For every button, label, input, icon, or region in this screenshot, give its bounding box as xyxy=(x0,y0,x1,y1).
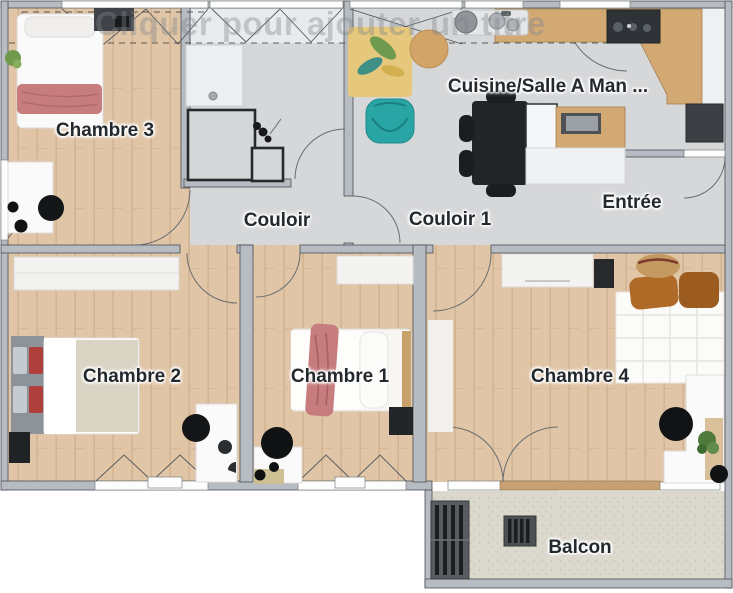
window-cuisine-top xyxy=(350,1,462,8)
door-threshold xyxy=(181,188,190,245)
window-chambre3-top xyxy=(62,1,208,8)
wall-right xyxy=(725,1,732,588)
window-chambre3-left xyxy=(1,160,8,240)
chair-chambre2[interactable] xyxy=(182,414,210,442)
blanket xyxy=(17,84,102,114)
windowsill-chambre4 xyxy=(500,481,660,490)
pillow xyxy=(13,386,27,413)
pillow-orange xyxy=(679,272,719,308)
window-bathroom-top xyxy=(210,1,343,8)
sill-chambre2 xyxy=(148,477,182,488)
shelf-chambre1[interactable] xyxy=(337,256,413,284)
plant-leaf xyxy=(13,60,22,69)
wall-balcony-bottom xyxy=(425,579,732,588)
stool-chambre4[interactable] xyxy=(710,465,728,483)
coat-rack-icon[interactable] xyxy=(8,202,19,213)
window-cuisine-top2 xyxy=(465,1,523,8)
shelf-chambre4[interactable] xyxy=(502,254,593,287)
room-label-chambre-2[interactable]: Chambre 2 xyxy=(83,366,181,388)
room-label-chambre-1[interactable]: Chambre 1 xyxy=(291,366,389,388)
door-threshold xyxy=(291,179,345,187)
desk-item xyxy=(255,470,266,481)
drying-rack[interactable] xyxy=(431,501,469,579)
room-label-couloir[interactable]: Couloir xyxy=(244,210,311,232)
door-threshold xyxy=(180,245,237,253)
coat-rack-icon[interactable] xyxy=(15,220,28,233)
door-threshold xyxy=(344,196,353,243)
dining-chair[interactable] xyxy=(459,115,474,142)
stove[interactable] xyxy=(607,10,660,43)
grill[interactable] xyxy=(504,516,536,546)
dining-chair[interactable] xyxy=(486,184,516,197)
chair-chambre3[interactable] xyxy=(38,195,64,221)
desk-item xyxy=(218,440,232,454)
bathroom-storage[interactable] xyxy=(188,110,255,180)
room-label-couloir-1[interactable]: Couloir 1 xyxy=(409,209,491,231)
round-pillow xyxy=(636,254,680,278)
nightstand-chambre1[interactable] xyxy=(389,407,413,435)
wall-mid-d xyxy=(491,245,725,253)
bathroom-closet[interactable] xyxy=(252,148,283,181)
room-balcon-floor[interactable] xyxy=(432,491,725,580)
room-label-entree[interactable]: Entrée xyxy=(602,192,661,214)
room-label-chambre-4[interactable]: Chambre 4 xyxy=(531,366,629,388)
bathroom-window-light xyxy=(191,9,344,43)
chair-chambre4[interactable] xyxy=(659,407,693,441)
pillow xyxy=(25,17,95,37)
dishwasher[interactable] xyxy=(526,104,557,149)
pillow-red xyxy=(29,347,43,374)
door-threshold xyxy=(433,245,491,253)
bed-fold xyxy=(44,338,76,434)
side-table[interactable] xyxy=(410,30,448,68)
door-gap-cuisine-top xyxy=(560,1,630,8)
dining-chair[interactable] xyxy=(459,150,474,177)
entry-door-gap xyxy=(684,150,725,157)
pillow xyxy=(13,347,27,374)
floorplan-canvas: Cliquer pour ajouter un titre Chambre 3 … xyxy=(0,0,733,593)
faucet-icon xyxy=(501,11,511,16)
headboard xyxy=(402,331,411,411)
dark-cabinet[interactable] xyxy=(594,259,614,288)
wardrobe-chambre4[interactable] xyxy=(428,320,453,432)
kitchen-sink[interactable] xyxy=(452,10,528,35)
pillow-orange xyxy=(628,274,679,311)
shower-drain-icon xyxy=(209,92,217,100)
tv-stand-chambre2[interactable] xyxy=(9,432,30,463)
wall-ch2-ch1 xyxy=(240,245,253,482)
room-label-balcon[interactable]: Balcon xyxy=(548,537,611,559)
room-label-cuisine[interactable]: Cuisine/Salle A Man ... xyxy=(448,76,648,98)
room-label-chambre-3[interactable]: Chambre 3 xyxy=(56,120,154,142)
wall-mid-a xyxy=(1,245,180,253)
pillow-red xyxy=(29,386,43,413)
desk-item xyxy=(269,462,279,472)
wall-ch1-ch4 xyxy=(413,245,426,482)
sill-chambre1 xyxy=(335,477,365,488)
fridge[interactable] xyxy=(686,104,723,142)
kitchen-corner-floor xyxy=(702,9,725,104)
chair-chambre1[interactable] xyxy=(261,427,293,459)
desk-item xyxy=(115,16,129,27)
armchair-teal[interactable] xyxy=(366,99,414,143)
door-threshold xyxy=(253,245,300,253)
